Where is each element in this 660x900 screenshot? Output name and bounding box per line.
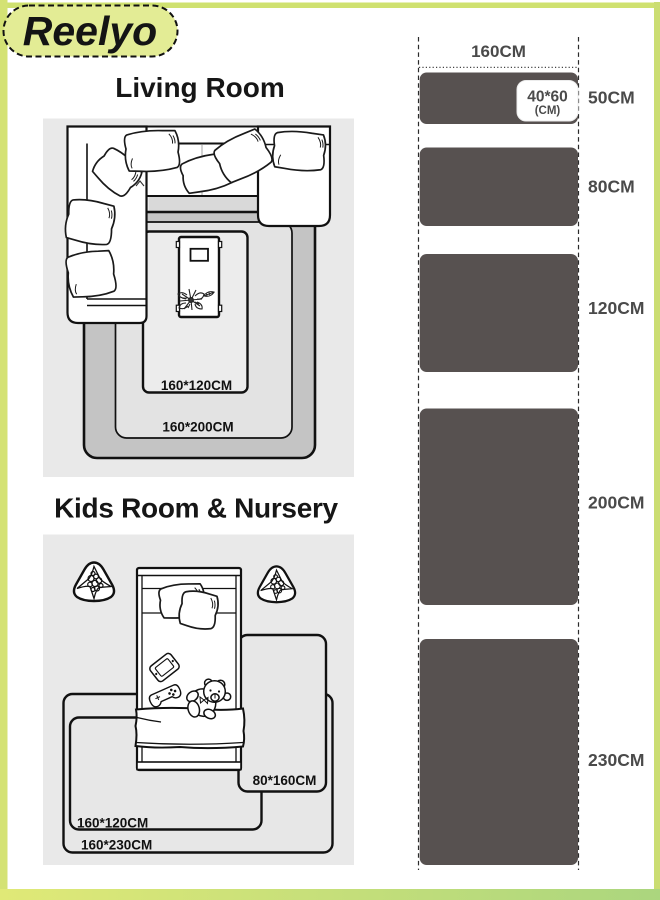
svg-text:160*200CM: 160*200CM <box>162 420 233 435</box>
svg-text:120CM: 120CM <box>588 298 644 318</box>
svg-text:40*60: 40*60 <box>527 89 568 106</box>
svg-text:160*120CM: 160*120CM <box>161 378 232 393</box>
svg-text:200CM: 200CM <box>588 493 644 513</box>
svg-text:Reelyo: Reelyo <box>23 8 157 54</box>
svg-text:Kids Room & Nursery: Kids Room & Nursery <box>54 493 338 524</box>
svg-text:160*230CM: 160*230CM <box>81 838 152 853</box>
svg-text:230CM: 230CM <box>588 750 644 770</box>
svg-text:Living Room: Living Room <box>115 72 285 103</box>
svg-text:160CM: 160CM <box>471 42 526 61</box>
svg-text:160*120CM: 160*120CM <box>77 816 148 831</box>
svg-text:50CM: 50CM <box>588 88 635 108</box>
svg-text:(CM): (CM) <box>535 105 561 117</box>
svg-text:80CM: 80CM <box>588 177 635 197</box>
svg-text:80*160CM: 80*160CM <box>253 773 317 788</box>
